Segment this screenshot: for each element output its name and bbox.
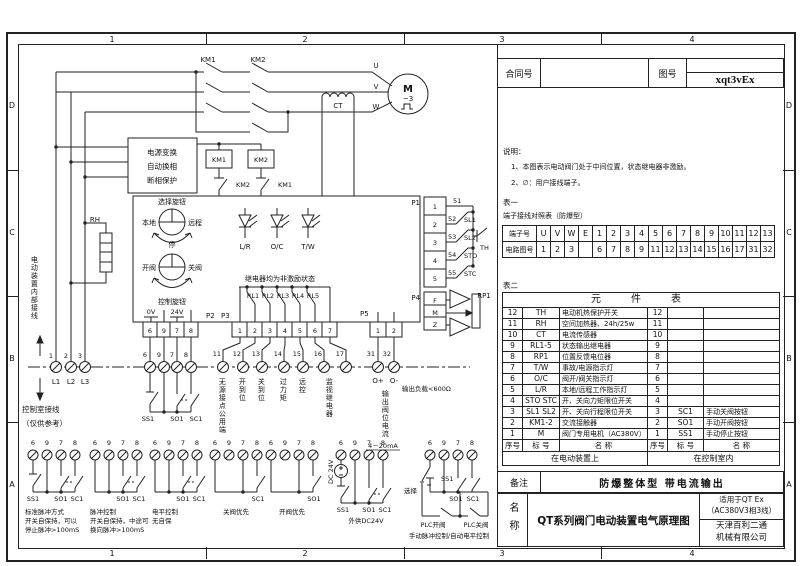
svg-text:9: 9 xyxy=(283,439,287,447)
g6-caption: 外供DC24V xyxy=(348,516,384,525)
svg-text:SC1: SC1 xyxy=(379,506,392,514)
table-row: 9RL1-5状态输出继电器9 xyxy=(503,341,780,352)
svg-text:8: 8 xyxy=(189,327,193,335)
stc-label: STC xyxy=(464,270,477,278)
svg-text:4: 4 xyxy=(283,327,287,335)
svg-text:SC1: SC1 xyxy=(467,495,480,503)
rl5-label: RL5 xyxy=(307,292,319,300)
g5-caption: 开阀优先 xyxy=(279,507,306,516)
svg-text:SO1: SO1 xyxy=(362,506,375,514)
table-row: 2KM1-2交流接触器2SO1手动开阀按钮 xyxy=(503,418,780,429)
terminal-label-11: 无源接点公用端 xyxy=(218,378,225,434)
svg-text:2: 2 xyxy=(64,352,68,360)
g2-caption1: 脉冲控制 xyxy=(90,507,117,516)
remarks-text: 防爆整体型 带电流输出 xyxy=(541,472,783,492)
table2-caption: 表二 xyxy=(503,280,518,291)
power-box-line3: 断相保护 xyxy=(147,175,177,185)
o-minus-label: O- xyxy=(390,377,399,385)
svg-text:9: 9 xyxy=(353,439,357,447)
output-current-label: 输出阀位电流 xyxy=(381,390,388,438)
svg-text:6: 6 xyxy=(31,439,35,447)
note-1: 1、本图表示电动阀门处于中间位置，状态继电器非激励。 xyxy=(511,162,690,172)
terminal-label-13: 关到位 xyxy=(257,378,264,402)
table-row: 11RH空间加热器、24h/25w11 xyxy=(503,319,780,330)
phase-w-label: W xyxy=(373,103,380,111)
svg-text:SO1: SO1 xyxy=(307,495,320,503)
table1-subtitle: 端子接线对照表（防爆型） xyxy=(503,211,587,221)
p4-label: P4 xyxy=(411,294,420,302)
component-table: 元 件 表 12TH电动机热保护开关12 11RH空间加热器、24h/25w11… xyxy=(502,292,780,466)
wire-55: 55 xyxy=(448,269,456,277)
terminal-12 xyxy=(238,362,249,373)
svg-text:SC1: SC1 xyxy=(193,495,206,503)
svg-text:F: F xyxy=(433,297,437,305)
rl3-label: RL3 xyxy=(277,292,289,300)
svg-text:6: 6 xyxy=(339,439,343,447)
svg-text:7: 7 xyxy=(170,351,174,359)
svg-text:8: 8 xyxy=(381,439,385,447)
g1-caption1: 标准脉冲方式 xyxy=(25,507,65,516)
terminal-16 xyxy=(319,362,330,373)
drawing-no-top xyxy=(687,59,783,73)
rl4-label: RL4 xyxy=(292,292,304,300)
note-2: 2、∅：用户接线端子。 xyxy=(511,178,585,188)
circuit-row-label: 电路图号 xyxy=(503,242,537,258)
name-block: 名称 QT系列阀门电动装置电气原理图 适用于QT Ex （AC380V3相3线）… xyxy=(497,493,784,547)
v0-label: 0V xyxy=(147,308,156,316)
svg-text:11: 11 xyxy=(213,350,221,358)
company-line2: 机械有限公司 xyxy=(716,533,767,543)
svg-text:32: 32 xyxy=(383,350,391,358)
contract-label: 合同号 xyxy=(498,59,541,87)
fit-line2: （AC380V3相3线） xyxy=(707,506,776,515)
km2-contact-label: KM2 xyxy=(250,56,265,64)
power-box-line1: 电源变换 xyxy=(147,147,177,157)
terminal-15 xyxy=(298,362,309,373)
p5-label: P5 xyxy=(360,310,369,318)
svg-text:7: 7 xyxy=(181,439,185,447)
rp1-label: RP1 xyxy=(477,292,491,300)
svg-text:7: 7 xyxy=(456,439,460,447)
g1-caption3: 停止脉冲>100mS xyxy=(25,525,79,534)
terminal-8 xyxy=(186,362,197,373)
terminal-11 xyxy=(218,362,229,373)
terminal-row-label: 端子号 xyxy=(503,226,537,242)
p3-label: P3 xyxy=(221,312,230,320)
remote-label: 远程 xyxy=(188,218,202,227)
svg-text:16: 16 xyxy=(314,350,322,358)
table-row: 10CT电流传感器10 xyxy=(503,330,780,341)
terminal-label-15: 远控 xyxy=(298,378,305,394)
svg-text:SO1: SO1 xyxy=(116,495,129,503)
rh-label: RH xyxy=(90,216,100,224)
svg-text:8: 8 xyxy=(195,439,199,447)
name-label: 名称 xyxy=(498,494,528,546)
contract-value xyxy=(541,59,649,87)
svg-text:3: 3 xyxy=(268,327,272,335)
svg-text:17: 17 xyxy=(336,350,344,358)
control-knob-title: 控制旋钮 xyxy=(158,297,186,306)
applicable-model: 适用于QT Ex （AC380V3相3线） xyxy=(700,494,783,520)
terminal-13 xyxy=(257,362,268,373)
svg-text:7: 7 xyxy=(367,439,371,447)
km1-interlock-label: KM1 xyxy=(278,181,292,189)
svg-text:2: 2 xyxy=(433,221,437,229)
select-label: 选择 xyxy=(404,486,418,495)
power-box-line2: 自动换相 xyxy=(147,161,177,171)
svg-text:9: 9 xyxy=(45,439,49,447)
drawing-no-label: 图号 xyxy=(649,59,687,87)
svg-text:M: M xyxy=(432,309,438,317)
drawing-title: QT系列阀门电动装置电气原理图 xyxy=(528,494,700,546)
terminal-6 xyxy=(145,362,156,373)
terminal-7 xyxy=(172,362,183,373)
svg-text:2: 2 xyxy=(392,327,396,335)
sl2-label: SL2 xyxy=(464,234,476,242)
table-row: 7T/W事故/电源指示灯7 xyxy=(503,363,780,374)
table-row: 4STO STC开、关向力矩限位开关4 xyxy=(503,396,780,407)
svg-text:8: 8 xyxy=(470,439,474,447)
ct-label: CT xyxy=(333,102,343,110)
svg-text:31: 31 xyxy=(367,350,375,358)
svg-text:3: 3 xyxy=(78,352,82,360)
svg-text:SS1: SS1 xyxy=(142,415,154,423)
remarks-label: 备注 xyxy=(498,472,541,492)
fit-line1: 适用于QT Ex xyxy=(719,495,764,504)
motor-phase-label: ~3 xyxy=(403,95,413,103)
table-row: 1M阀门专用电机（AC380V）1SS1手动停止按钮 xyxy=(503,429,780,440)
terminal-label-16-17: 监视继电器 xyxy=(325,378,332,418)
terminal-row: 端子号 UV WE 12 34 56 78 910 1112 13 xyxy=(503,226,775,242)
sto-label: STO xyxy=(464,252,477,260)
svg-text:6: 6 xyxy=(148,327,152,335)
wire-52: 52 xyxy=(448,215,456,223)
table-row: 5L/R本地/远程工作指示灯5 xyxy=(503,385,780,396)
svg-text:13: 13 xyxy=(252,350,260,358)
th-label: TH xyxy=(479,244,489,252)
svg-text:9: 9 xyxy=(157,351,161,359)
o-plus-label: O+ xyxy=(372,377,384,385)
drawing-no-value: xqt3vEx xyxy=(687,73,783,87)
svg-text:5: 5 xyxy=(433,275,437,283)
svg-text:9: 9 xyxy=(162,327,166,335)
svg-text:1: 1 xyxy=(433,203,437,211)
company-line1: 天津百利二通 xyxy=(716,521,767,531)
svg-text:15: 15 xyxy=(293,350,301,358)
wire-53: 53 xyxy=(448,233,456,241)
open-valve-label: 开阀 xyxy=(142,263,156,272)
svg-text:SC1: SC1 xyxy=(252,495,265,503)
svg-text:2: 2 xyxy=(253,327,257,335)
svg-text:3: 3 xyxy=(433,239,437,247)
svg-text:6: 6 xyxy=(153,439,157,447)
led-tw-label: T/W xyxy=(300,243,315,251)
close-valve-label: 关阀 xyxy=(188,263,202,272)
svg-text:7: 7 xyxy=(241,439,245,447)
svg-text:14: 14 xyxy=(274,350,282,358)
svg-text:1: 1 xyxy=(238,327,242,335)
table-row: 8RP1位置反馈电位器8 xyxy=(503,352,780,363)
terminal-L1 xyxy=(51,362,62,373)
terminal-table: 端子号 UV WE 12 34 56 78 910 1112 13 电路图号 1… xyxy=(502,225,775,258)
svg-text:8: 8 xyxy=(311,439,315,447)
svg-text:SC1: SC1 xyxy=(71,495,84,503)
svg-text:9: 9 xyxy=(107,439,111,447)
wire-54: 54 xyxy=(448,251,456,259)
svg-text:7: 7 xyxy=(175,327,179,335)
table1-caption: 表一 xyxy=(503,197,518,208)
phase-u-label: U xyxy=(373,62,378,70)
svg-text:8: 8 xyxy=(73,439,77,447)
wire-51: 51 xyxy=(453,197,461,205)
terminal-32 xyxy=(389,362,400,373)
v24-label: 24V xyxy=(171,308,184,316)
svg-text:SS1: SS1 xyxy=(337,506,349,514)
terminal-9 xyxy=(159,362,170,373)
g4-caption: 关阀优先 xyxy=(223,507,250,516)
svg-text:7: 7 xyxy=(121,439,125,447)
local-label: 本地 xyxy=(142,218,156,227)
svg-text:6: 6 xyxy=(213,439,217,447)
terminal-17 xyxy=(341,362,352,373)
svg-text:6: 6 xyxy=(93,439,97,447)
schematic-page: { "frame": {"cols": ["1","2","3","4"], "… xyxy=(0,0,800,566)
g1-caption2: 开关自保持，可以 xyxy=(25,516,78,525)
svg-text:SO1: SO1 xyxy=(170,415,183,423)
title-header-block: 合同号 图号 xqt3vEx xyxy=(497,58,784,88)
svg-text:9: 9 xyxy=(442,439,446,447)
plc-open-label: PLC开阀 xyxy=(420,520,445,529)
table-row: 12TH电动机热保护开关12 xyxy=(503,308,780,319)
svg-text:4: 4 xyxy=(433,257,437,265)
terminal-L3 xyxy=(80,362,91,373)
group-terminals xyxy=(28,450,477,460)
svg-text:6: 6 xyxy=(313,327,317,335)
load-label: 输出负载<600Ω xyxy=(402,384,451,393)
table-row: 6O/C阀开/阀关指示灯6 xyxy=(503,374,780,385)
company-name: 天津百利二通 机械有限公司 xyxy=(700,520,783,546)
svg-text:9: 9 xyxy=(227,439,231,447)
dc24v-label: DC 24V xyxy=(327,459,335,484)
phase-v-label: V xyxy=(374,83,379,91)
svg-text:SO1: SO1 xyxy=(176,495,189,503)
km1-coil-label: KM1 xyxy=(212,156,226,164)
terminal-14 xyxy=(279,362,290,373)
control-room-note2: （仅供参考） xyxy=(22,418,67,429)
svg-text:6: 6 xyxy=(428,439,432,447)
svg-text:5: 5 xyxy=(298,327,302,335)
svg-text:9: 9 xyxy=(167,439,171,447)
g2-caption2: 开关自保持，中途可 xyxy=(90,516,149,525)
svg-text:8: 8 xyxy=(255,439,259,447)
km2-coil-label: KM2 xyxy=(254,156,268,164)
circuit-row: 电路图号 12 3 67 89 1112 1314 1516 1731 32 xyxy=(503,242,775,258)
rl1-label: RL1 xyxy=(247,292,259,300)
svg-text:SO1: SO1 xyxy=(449,495,462,503)
l3-label: L3 xyxy=(81,378,89,386)
svg-text:6: 6 xyxy=(269,439,273,447)
motor-label: M xyxy=(403,84,413,95)
svg-text:Z: Z xyxy=(433,321,438,329)
svg-text:SC1: SC1 xyxy=(190,415,203,423)
svg-text:SS1: SS1 xyxy=(441,475,453,483)
sl1-label: SL1 xyxy=(464,216,476,224)
plc-close-label: PLC关阀 xyxy=(463,520,488,529)
svg-text:1: 1 xyxy=(49,352,53,360)
svg-text:12: 12 xyxy=(233,350,241,358)
svg-text:7: 7 xyxy=(328,327,332,335)
component-table-footer: 在电动装置上 在控制室内 xyxy=(503,452,780,466)
terminal-label-12: 开到位 xyxy=(238,378,245,402)
led-lr-label: L/R xyxy=(239,243,250,251)
svg-text:6: 6 xyxy=(143,351,147,359)
g3-caption2: 无自保 xyxy=(152,516,172,525)
l2-label: L2 xyxy=(67,378,75,386)
control-room-note: 控制室接线 xyxy=(22,404,60,415)
l1-label: L1 xyxy=(52,378,60,386)
component-table-header: 序号标 号名 称 序号标 号名 称 xyxy=(503,440,780,452)
internal-wiring-note: 电动装置内部接线 xyxy=(30,256,37,320)
svg-text:SC1: SC1 xyxy=(133,495,146,503)
stop-label: 停 xyxy=(169,240,176,249)
table-row: 3SL1 SL2开、关向行程限位开关3SC1手动关阀按钮 xyxy=(503,407,780,418)
p1-label: P1 xyxy=(411,199,420,207)
p2-label: P2 xyxy=(206,312,215,320)
g2-caption3: 换向脉冲>100mS xyxy=(90,525,144,534)
svg-text:7: 7 xyxy=(297,439,301,447)
led-oc-label: O/C xyxy=(271,243,284,251)
remarks-block: 备注 防爆整体型 带电流输出 xyxy=(497,471,784,493)
svg-text:SO1: SO1 xyxy=(54,495,67,503)
svg-text:8: 8 xyxy=(184,351,188,359)
g7-caption: 手动脉冲控制/自动电平控制 xyxy=(409,531,490,540)
wires xyxy=(28,63,488,516)
terminal-label-14: 过力矩 xyxy=(279,378,286,402)
svg-text:8: 8 xyxy=(135,439,139,447)
notes-title: 说明： xyxy=(503,146,526,157)
terminal-L2 xyxy=(66,362,77,373)
terminal-31 xyxy=(373,362,384,373)
selector-knob-title: 选择旋钮 xyxy=(158,197,186,206)
component-table-title: 元 件 表 xyxy=(503,293,780,308)
g3-caption1: 电平控制 xyxy=(152,507,179,516)
svg-text:SS1: SS1 xyxy=(27,495,39,503)
km1-contact-label: KM1 xyxy=(200,56,215,64)
relay-state-note: 继电器均为非激励状态 xyxy=(245,274,315,283)
rl2-label: RL2 xyxy=(262,292,274,300)
svg-text:1: 1 xyxy=(376,327,380,335)
svg-text:7: 7 xyxy=(59,439,63,447)
km2-interlock-label: KM2 xyxy=(236,181,250,189)
